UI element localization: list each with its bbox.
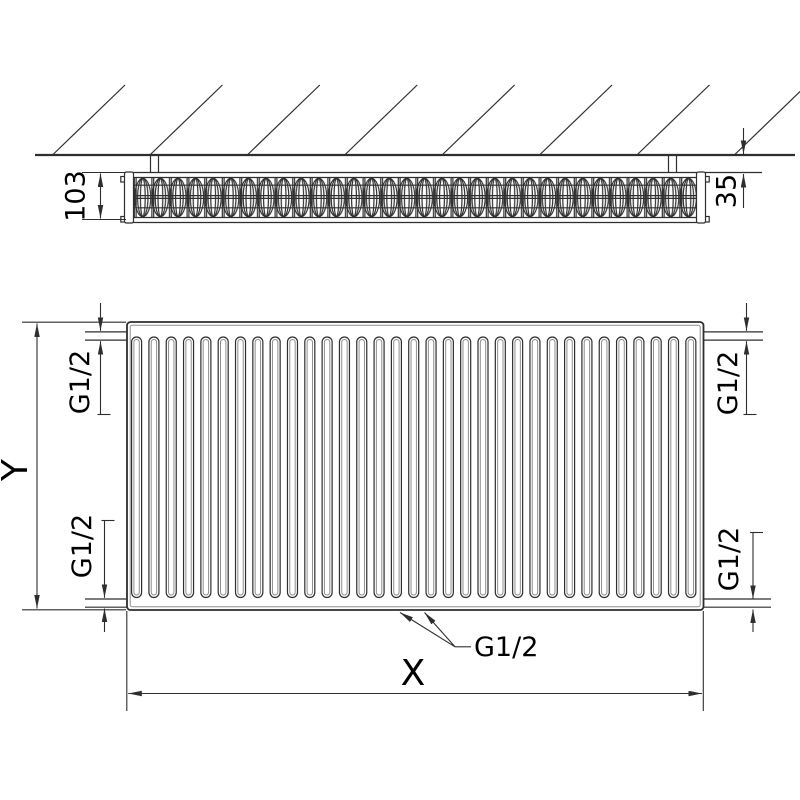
radiator-top-view bbox=[121, 172, 762, 223]
hatch-line bbox=[150, 85, 222, 155]
connection-stub-bottom-right bbox=[704, 599, 772, 607]
hatch-line bbox=[248, 85, 320, 155]
hatch-line bbox=[637, 85, 709, 155]
mounting-bracket-right bbox=[669, 155, 677, 173]
hatch-line bbox=[540, 85, 612, 155]
connection-label-bottom-center: G1/2 bbox=[474, 632, 538, 663]
connection-dimension-bottom-right: G1/2 bbox=[714, 527, 763, 632]
convector-fins bbox=[134, 178, 697, 218]
connection-stub-top-right bbox=[704, 332, 764, 340]
connection-label-bottom-left: G1/2 bbox=[67, 514, 98, 578]
connection-dimension-top-right: G1/2 bbox=[713, 303, 757, 415]
end-plate-left bbox=[125, 172, 134, 223]
wall-clearance-dimension-label: 35 bbox=[712, 174, 743, 208]
height-dimension-label: Y bbox=[0, 458, 36, 482]
wall-section bbox=[35, 85, 800, 173]
length-dimension-label: X bbox=[401, 653, 426, 694]
hatch-line bbox=[443, 85, 515, 155]
connection-stub-bottom-left bbox=[85, 599, 127, 607]
wall-hatching bbox=[53, 85, 800, 155]
connection-stub-top-left bbox=[85, 332, 127, 340]
connection-dimension-top-left: G1/2 bbox=[65, 303, 111, 415]
connection-label-top-right: G1/2 bbox=[713, 351, 744, 415]
connection-label-bottom-right: G1/2 bbox=[714, 527, 745, 591]
mounting-bracket-left bbox=[151, 155, 159, 173]
leader-arrow bbox=[400, 613, 455, 647]
radiator-front-view bbox=[85, 322, 771, 610]
hatch-line bbox=[53, 85, 125, 155]
dimension-height: Y bbox=[0, 322, 126, 610]
hatch-line bbox=[345, 85, 417, 155]
connection-label-top-left: G1/2 bbox=[65, 350, 96, 414]
depth-dimension-label: 103 bbox=[61, 170, 92, 222]
dimension-length: X bbox=[127, 611, 704, 711]
leader-arrow bbox=[425, 613, 456, 647]
dimension-depth: 103 bbox=[61, 170, 127, 222]
technical-drawing-canvas: 103 35 G1/2 G1/2 G1/2 bbox=[0, 0, 800, 800]
hatch-line bbox=[735, 85, 800, 155]
dimension-wall-clearance: 35 bbox=[712, 128, 744, 208]
end-plate-right bbox=[697, 172, 706, 223]
connection-dimension-bottom-left: G1/2 bbox=[67, 514, 115, 632]
radiator-technical-drawing: 103 35 G1/2 G1/2 G1/2 bbox=[0, 0, 800, 800]
